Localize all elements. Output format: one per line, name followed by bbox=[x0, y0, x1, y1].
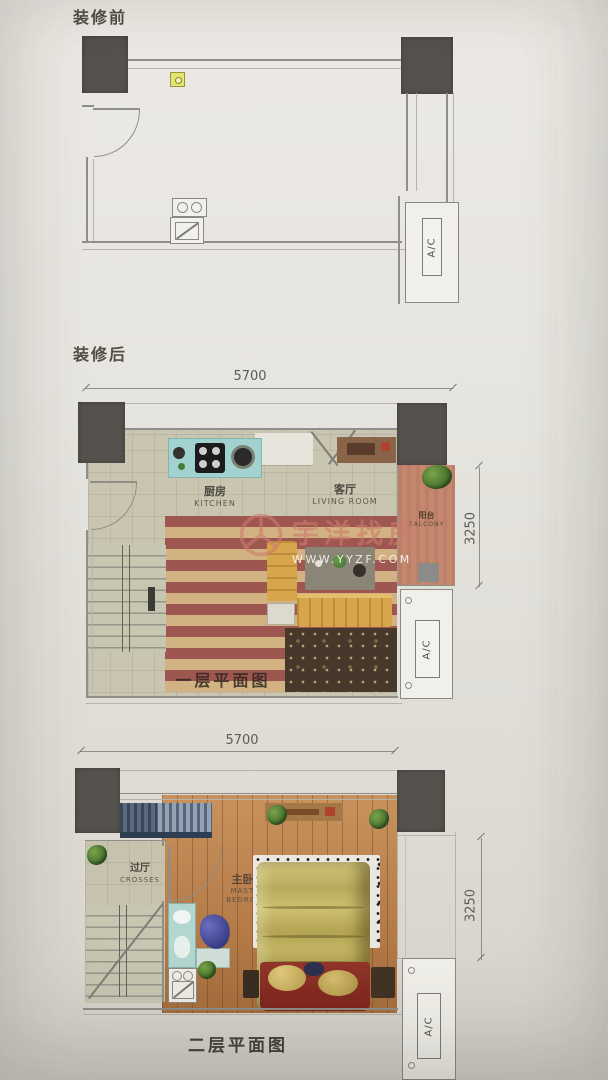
dimension-depth-floor1: 3250 bbox=[464, 508, 479, 550]
watermark-text: 宇洋找房 WWW.YYZF.COM bbox=[292, 512, 420, 566]
stair-rail bbox=[122, 545, 130, 652]
oven-box bbox=[170, 217, 204, 244]
ac-label: A/C bbox=[422, 639, 433, 659]
living-label-zh: 客厅 bbox=[285, 483, 405, 497]
floorplan-floor2: 过厅 CROSSES 主卧室 MASTER BEDROOM bbox=[75, 763, 458, 1063]
sink-icon bbox=[231, 445, 255, 469]
outlet-dot bbox=[175, 77, 182, 84]
decor-item bbox=[381, 442, 390, 451]
stove-top bbox=[172, 198, 207, 217]
ac-unit: A/C bbox=[402, 958, 456, 1080]
stove-icon bbox=[195, 443, 225, 473]
kitchen-label-en: KITCHEN bbox=[155, 499, 275, 509]
wall-line bbox=[86, 696, 398, 698]
wall-line bbox=[120, 770, 397, 771]
staircase bbox=[86, 905, 162, 1003]
staircase bbox=[88, 545, 166, 652]
wall-line bbox=[128, 59, 401, 61]
stove-box bbox=[168, 968, 197, 1003]
caption-floor1: 一层平面图 bbox=[163, 667, 283, 691]
duvet-fold bbox=[262, 906, 366, 909]
wardrobe-dark-side bbox=[120, 803, 157, 832]
wall-line bbox=[397, 835, 455, 836]
duvet-fold bbox=[262, 935, 366, 938]
burner-icon bbox=[199, 460, 207, 468]
wall-line bbox=[86, 463, 88, 479]
pillow bbox=[318, 970, 358, 996]
living-room-label: 客厅 LIVING ROOM bbox=[285, 483, 405, 507]
burner-icon bbox=[212, 447, 220, 455]
wall-line bbox=[406, 93, 408, 191]
wall-line bbox=[416, 93, 417, 191]
side-table bbox=[267, 603, 295, 625]
kettle-icon bbox=[173, 447, 185, 459]
oven-door bbox=[175, 222, 199, 240]
kitchen-label-zh: 厨房 bbox=[155, 485, 275, 499]
dimension-width-floor2: 5700 bbox=[207, 733, 277, 748]
wall-line bbox=[93, 159, 94, 241]
dimension-line bbox=[479, 467, 480, 587]
column bbox=[397, 770, 445, 832]
oven-door bbox=[172, 981, 194, 999]
dimension-line bbox=[80, 751, 395, 752]
caption-floor2: 二层平面图 bbox=[173, 1031, 303, 1056]
kitchen-counter bbox=[168, 438, 262, 478]
wall-line bbox=[83, 1014, 402, 1015]
wall-line bbox=[128, 68, 401, 69]
wall-line bbox=[125, 403, 397, 404]
wall-line bbox=[162, 840, 164, 846]
ac-unit: A/C bbox=[405, 202, 459, 303]
wall-line bbox=[405, 837, 406, 957]
blanket bbox=[260, 962, 370, 1011]
sink-icon bbox=[173, 910, 191, 924]
section-title-before: 装修前 bbox=[73, 4, 127, 28]
living-label-en: LIVING ROOM bbox=[285, 497, 405, 507]
dimension-depth-floor2: 3250 bbox=[464, 885, 479, 927]
ac-bracket bbox=[398, 196, 400, 304]
sofa bbox=[297, 594, 392, 627]
wardrobe bbox=[120, 803, 212, 838]
wall-line bbox=[120, 799, 397, 800]
burner-icon bbox=[199, 447, 207, 455]
wall-line bbox=[82, 249, 406, 250]
kitchen-label: 厨房 KITCHEN bbox=[155, 485, 275, 509]
column bbox=[75, 768, 120, 833]
nightstand bbox=[371, 967, 395, 998]
wall-line bbox=[397, 585, 455, 586]
wall-line bbox=[453, 93, 454, 203]
burner-icon bbox=[212, 460, 220, 468]
wall-line bbox=[86, 157, 88, 243]
toilet-icon bbox=[174, 936, 190, 958]
ac-label-box: A/C bbox=[417, 993, 441, 1059]
wall-line bbox=[83, 1008, 398, 1010]
burner-icon bbox=[172, 971, 182, 981]
door-swing-arc bbox=[91, 483, 137, 530]
wall-line bbox=[162, 901, 164, 1002]
watermark-logo-icon bbox=[238, 512, 284, 558]
dimension-line bbox=[85, 388, 453, 389]
pillow bbox=[304, 962, 324, 976]
watermark: 宇洋找房 WWW.YYZF.COM bbox=[238, 512, 420, 566]
oven-diagonal bbox=[173, 981, 193, 998]
bath-cabinet bbox=[168, 903, 196, 968]
shelf-item bbox=[325, 807, 335, 816]
oven-diagonal bbox=[176, 222, 199, 239]
ac-label-box: A/C bbox=[415, 620, 440, 678]
watermark-brand: 宇洋找房 bbox=[292, 512, 420, 551]
nightstand bbox=[243, 970, 259, 998]
electrical-outlet-icon bbox=[170, 72, 185, 87]
stair-post bbox=[148, 587, 155, 611]
floorplan-before: A/C bbox=[64, 36, 460, 306]
tv-cabinet bbox=[337, 437, 396, 463]
wall-line bbox=[85, 840, 167, 841]
tv-icon bbox=[347, 443, 375, 455]
herb-pot-icon bbox=[178, 463, 185, 470]
wall-line bbox=[86, 703, 402, 704]
ac-label: A/C bbox=[427, 237, 438, 257]
burner-icon bbox=[177, 202, 188, 213]
screw-icon bbox=[408, 1062, 415, 1069]
column bbox=[397, 403, 447, 465]
ac-label: A/C bbox=[423, 1016, 434, 1036]
column bbox=[401, 37, 453, 94]
wall-line bbox=[86, 530, 88, 698]
wall-line bbox=[397, 832, 398, 959]
screw-icon bbox=[408, 967, 415, 974]
wall-line bbox=[92, 530, 93, 692]
counter bbox=[255, 433, 313, 466]
door-jamb bbox=[82, 105, 94, 107]
pillow bbox=[268, 965, 306, 991]
washer-icon bbox=[418, 563, 439, 582]
screw-icon bbox=[405, 682, 412, 689]
column bbox=[78, 402, 125, 463]
door-swing-arc bbox=[94, 110, 140, 157]
dimension-line bbox=[481, 838, 482, 960]
watermark-url: WWW.YYZF.COM bbox=[292, 553, 420, 566]
ac-unit: A/C bbox=[400, 589, 453, 699]
column bbox=[82, 36, 128, 93]
plant-icon bbox=[422, 465, 452, 489]
dark-carpet bbox=[285, 628, 397, 692]
wall-line bbox=[446, 93, 448, 203]
burner-icon bbox=[191, 202, 202, 213]
wall-line bbox=[82, 241, 402, 243]
ac-label-box: A/C bbox=[422, 218, 442, 276]
burner-icon bbox=[183, 971, 193, 981]
dimension-width-floor1: 5700 bbox=[215, 369, 285, 384]
wall-line bbox=[120, 793, 397, 794]
wall-line bbox=[88, 428, 397, 430]
wall-line bbox=[455, 832, 456, 959]
screw-icon bbox=[405, 597, 412, 604]
section-title-after: 装修后 bbox=[73, 341, 127, 365]
